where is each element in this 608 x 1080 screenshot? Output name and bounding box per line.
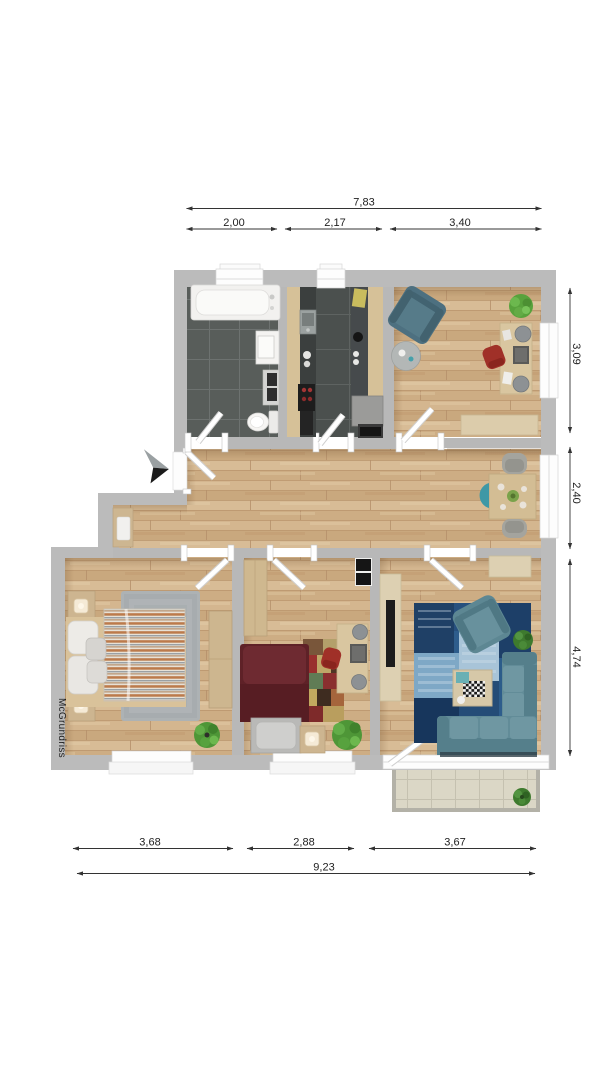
svg-text:3,67: 3,67 [444, 837, 465, 849]
svg-text:4,74: 4,74 [570, 646, 582, 667]
svg-text:3,68: 3,68 [139, 837, 160, 849]
svg-text:2,88: 2,88 [293, 837, 314, 849]
svg-text:2,40: 2,40 [570, 482, 582, 503]
svg-text:3,09: 3,09 [570, 343, 582, 364]
svg-text:McGrundriss: McGrundriss [56, 698, 67, 758]
svg-text:2,17: 2,17 [324, 217, 345, 229]
svg-text:2,00: 2,00 [223, 217, 244, 229]
svg-text:7,83: 7,83 [353, 197, 374, 209]
svg-text:9,23: 9,23 [313, 862, 334, 874]
svg-text:3,40: 3,40 [449, 217, 470, 229]
